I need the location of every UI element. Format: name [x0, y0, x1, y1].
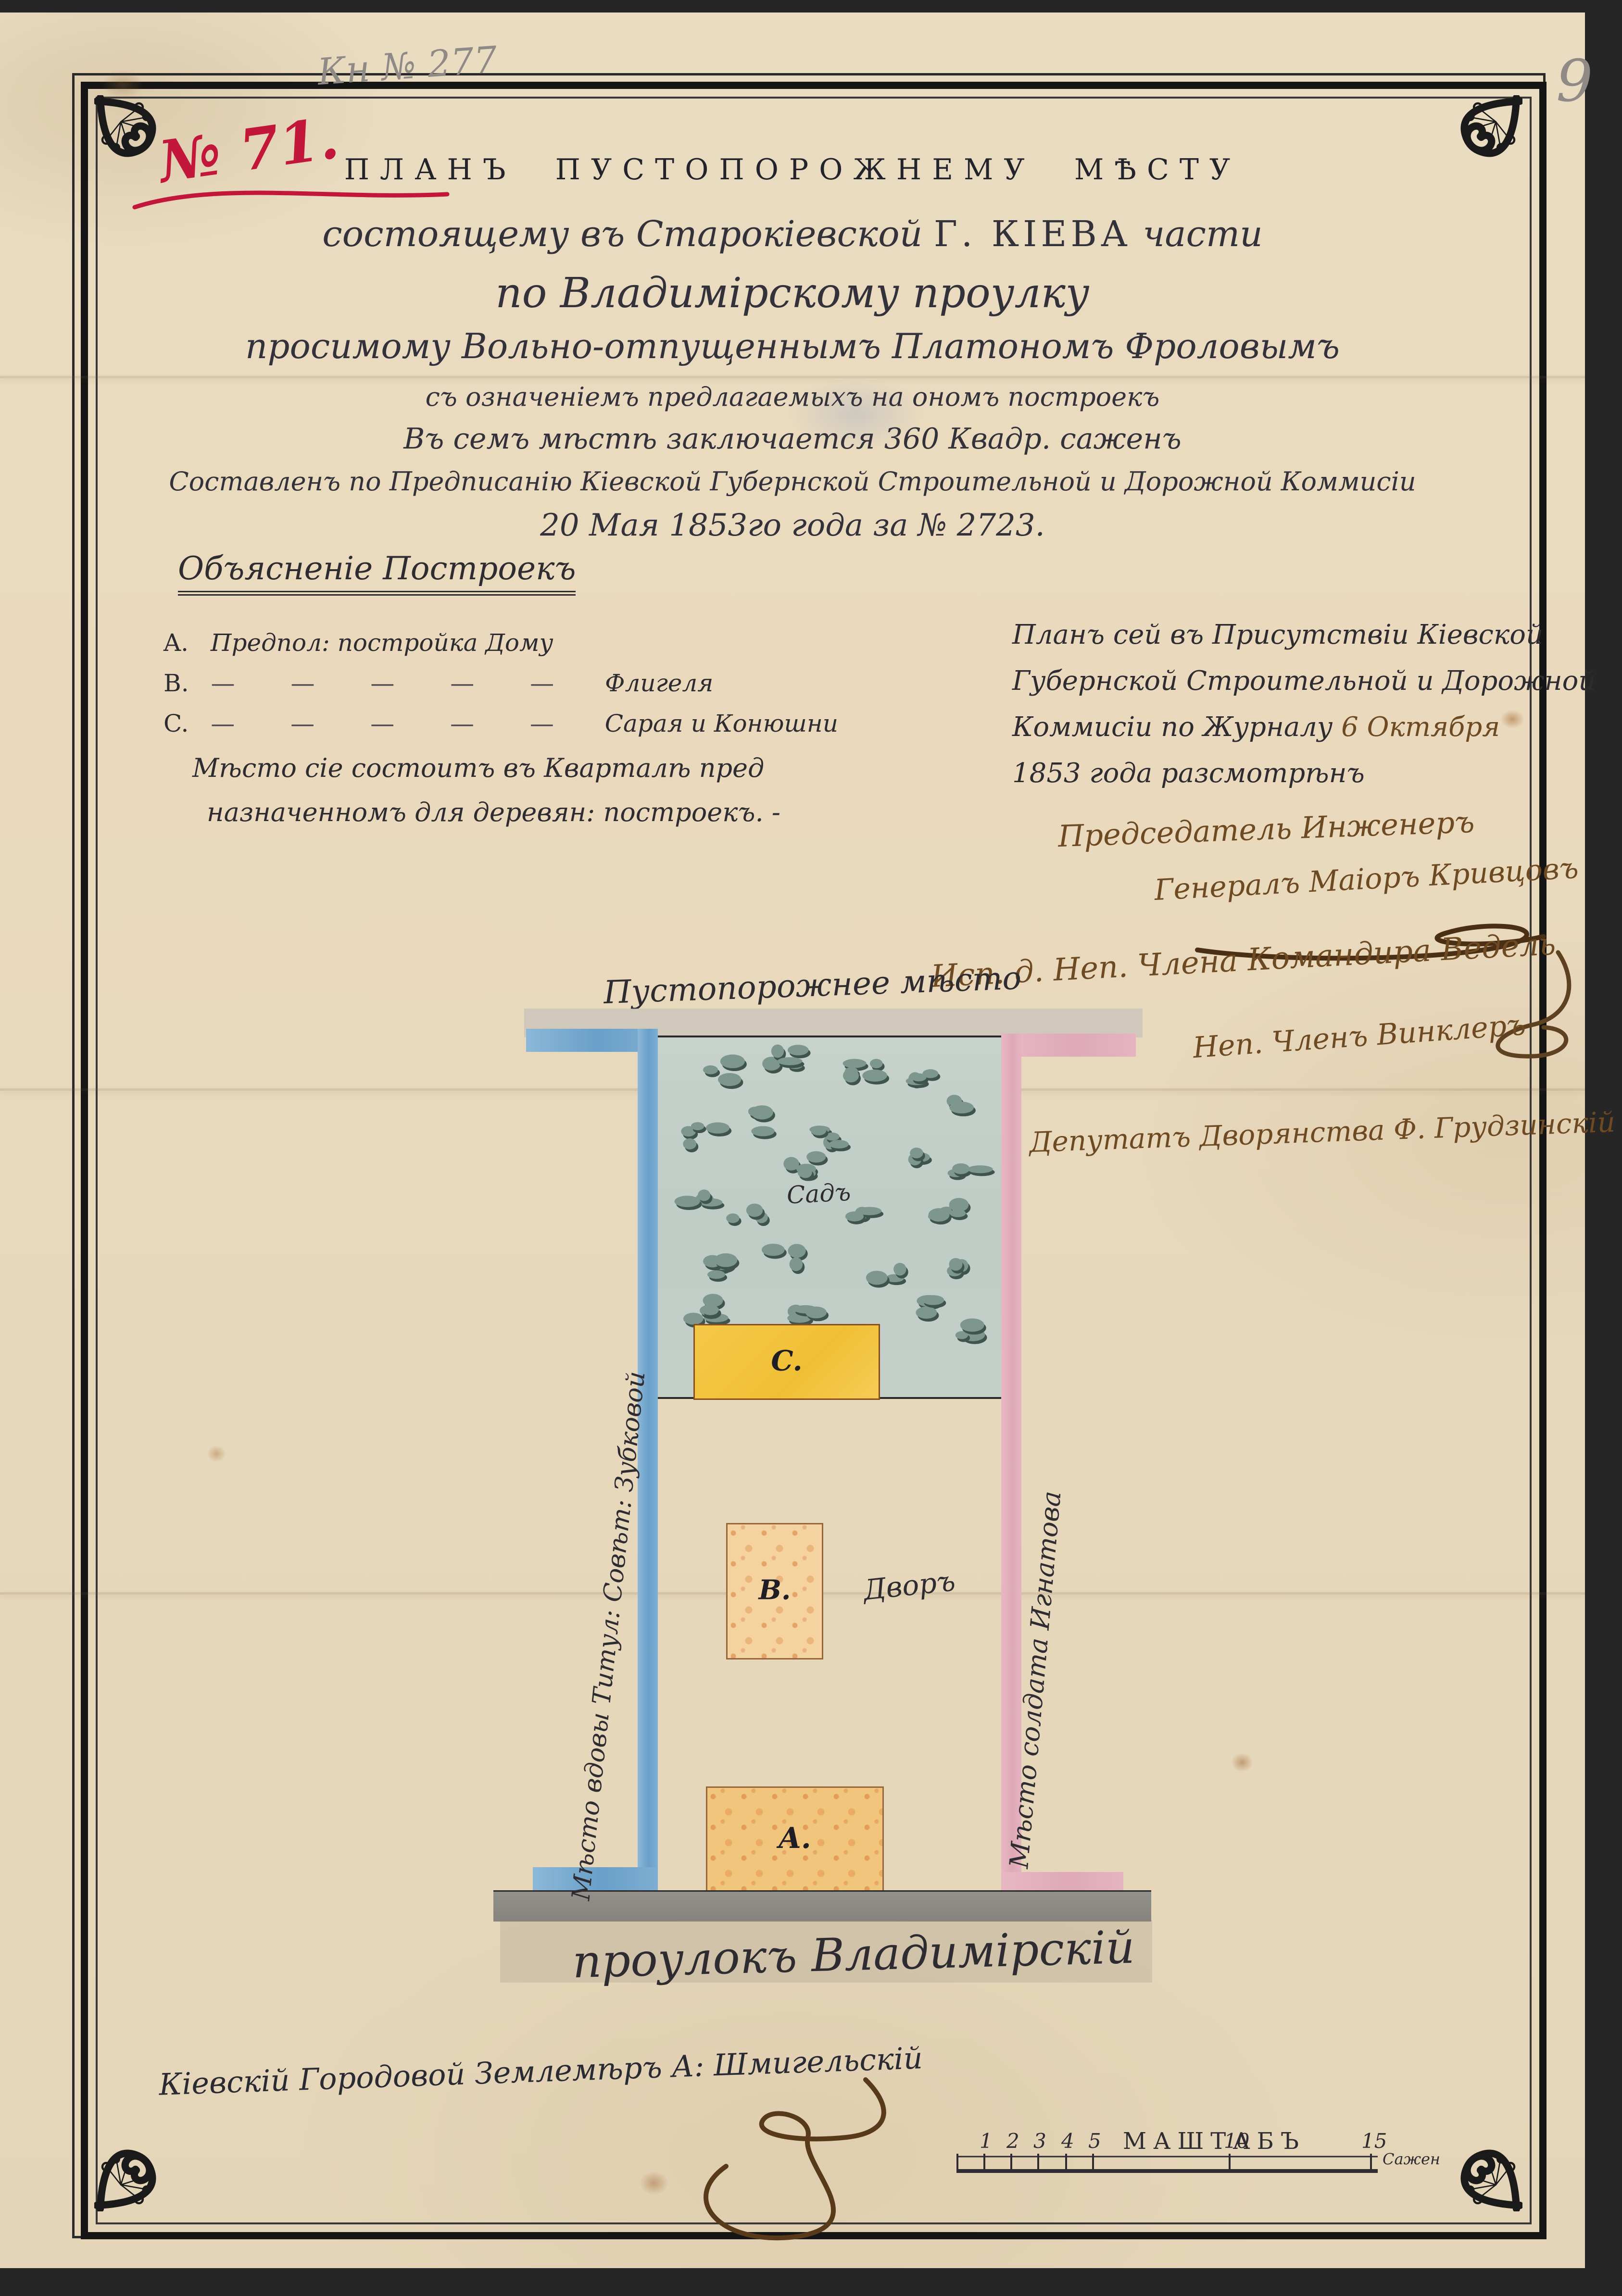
- title-seg: части: [1132, 213, 1263, 255]
- legend-dashes: — — — — —: [211, 710, 578, 737]
- scale-tick-label: 15: [1361, 2129, 1387, 2153]
- legend-heading: Объясненіе Построекъ: [178, 550, 576, 596]
- title-line-street: по Владимірскому проулку: [0, 269, 1585, 317]
- legend-note-line1: Мѣсто сіе состоитъ въ Кварталѣ пред: [192, 753, 764, 783]
- building-c: C.: [693, 1324, 880, 1400]
- signature-flourish: [1462, 943, 1587, 1068]
- building-b-label: B.: [728, 1574, 822, 1606]
- stain: [207, 1445, 226, 1462]
- fold-crease: [0, 376, 1585, 378]
- pencil-page-number: 9: [1556, 48, 1593, 115]
- commission-line2: Губернской Строительной и Дорожной: [1012, 665, 1596, 697]
- legend-note-line2: назначенномъ для деревян: построекъ. -: [207, 797, 780, 827]
- title-city-caps: Г. КІЕВА: [934, 213, 1132, 255]
- stain: [1231, 1753, 1253, 1772]
- plan-title: ПЛАНЪ ПУСТОПОРОЖНЕМУ МѢСТУ: [0, 153, 1585, 187]
- legend-key: C.: [163, 710, 189, 737]
- building-a: A.: [706, 1786, 884, 1893]
- scale-title: МАШТАБЪ: [1123, 2128, 1306, 2155]
- paper-sheet: Кн № 277 № 71. ПЛАНЪ ПУСТОПОРОЖНЕМУ МѢСТ…: [0, 12, 1585, 2268]
- scale-tick-label: 1: [980, 2129, 993, 2153]
- scale-tick-label: 3: [1033, 2129, 1046, 2153]
- title-line-petitioner: просимому Вольно-отпущеннымъ Платономъ Ф…: [0, 326, 1585, 366]
- stain: [101, 70, 144, 99]
- legend-text: Флигеля: [605, 669, 713, 697]
- building-a-label: A.: [707, 1822, 882, 1855]
- title-line-commission: Составленъ по Предписанію Кіевской Губер…: [0, 466, 1585, 497]
- scanned-plan-page: Кн № 277 № 71. ПЛАНЪ ПУСТОПОРОЖНЕМУ МѢСТ…: [0, 0, 1622, 2296]
- legend-text: Предпол: постройка Дому: [211, 629, 553, 657]
- scale-tick-label: 4: [1061, 2129, 1074, 2153]
- scale-tick-label: 2: [1006, 2129, 1019, 2153]
- title-line-date: 20 Мая 1853го года за № 2723.: [0, 508, 1585, 543]
- scale-bar: 1 2 3 4 5 МАШТАБЪ 10 15 Сажен: [955, 2127, 1464, 2189]
- title-line-area: Въ семъ мѣстѣ заключается 360 Квадр. саж…: [0, 422, 1585, 456]
- surveyor-flourish: [606, 2065, 904, 2248]
- corner-flourish-icon: [94, 2091, 214, 2211]
- title-seg: состоящему въ Старокіевской: [322, 213, 934, 255]
- commission-line4: 1853 года разсмотрѣнъ: [1012, 758, 1365, 789]
- scale-tick-label: 10: [1224, 2129, 1249, 2153]
- scale-unit: Сажен: [1383, 2150, 1440, 2168]
- commission-line3-black: Коммисіи по Журналу: [1012, 711, 1341, 743]
- scale-tick-label: 5: [1088, 2129, 1101, 2153]
- title-line-buildings: съ означеніемъ предлагаемыхъ на ономъ по…: [0, 382, 1585, 412]
- legend-dashes: — — — — —: [211, 669, 578, 697]
- stain: [1500, 710, 1524, 729]
- pink-strip-top-flange: [1001, 1034, 1136, 1057]
- garden-label: Садъ: [786, 1178, 852, 1210]
- legend-row-c: C. — — — — — Сарая и Конюшни: [163, 710, 838, 737]
- legend-key: B.: [163, 669, 189, 697]
- title-line-location: состоящему въ Старокіевской Г. КІЕВА час…: [0, 213, 1585, 255]
- building-b: B.: [726, 1523, 823, 1660]
- commission-line3: Коммисіи по Журналу 6 Октября: [1012, 711, 1500, 743]
- commission-line3-brown: 6 Октября: [1341, 711, 1500, 743]
- legend-row-a: A. Предпол: постройка Дому: [163, 629, 553, 657]
- legend-text: Сарая и Конюшни: [605, 710, 838, 737]
- legend-key: A.: [163, 629, 189, 657]
- building-c-label: C.: [695, 1344, 879, 1377]
- legend-row-b: B. — — — — — Флигеля: [163, 669, 713, 697]
- commission-line1: Планъ сей въ Присутствіи Кіевской: [1012, 619, 1543, 650]
